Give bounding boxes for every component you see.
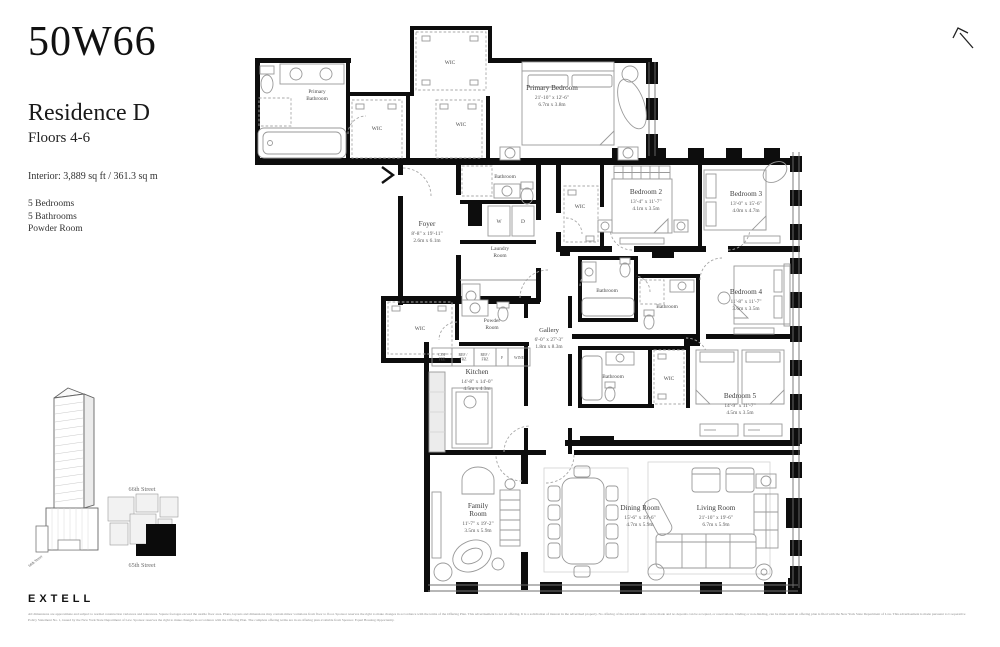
appliance-label-reffrz-2: REF /FRZ [481,353,491,362]
appliance-label-reffrz-1: REF /FRZ [459,353,469,362]
appliance-label-coffee: COFFEE [438,353,446,362]
building-illustration: 66th Street [28,388,98,568]
room-label-primary-bathroom: PrimaryBathroom [306,89,328,102]
appliance-label-wine: WINE [514,356,525,360]
room-label-powder: PowderRoom [484,318,501,331]
extell-logo: EXTELL [28,593,94,605]
room-label-kitchen: Kitchen14'-8" x 14'-0"4.5m x 4.3m [461,368,493,392]
room-label-laundry: LaundryRoom [491,246,510,259]
appliance-label-freezer: F [501,356,503,360]
room-label-wic-mid: WIC [372,126,383,132]
room-label-dining-room: Dining Room15'-6" x 19'-6"4.7m x 5.9m [620,504,660,528]
room-label-bathroom-bedroom5: Bathroom [602,374,624,380]
room-label-gallery: Gallery6'-0" x 27'-3"1.8m x 8.3m [535,327,564,350]
keyplan-street-top: 66th Street [129,486,156,493]
north-arrow-icon [953,28,973,48]
room-label-bedroom5: Bedroom 514'-9" x 11'-7"4.5m x 3.5m [724,392,757,416]
tower-street-label: 66th Street [28,554,44,568]
floor-plan-drawing: PrimaryBathroom WIC WIC WIC Primary Bedr… [0,0,1000,647]
room-label-bathroom-hall: Bathroom [596,288,618,294]
legal-disclaimer: All dimensions are approximate and subje… [28,612,972,624]
key-plan: 66th Street 65th Street [108,486,178,569]
floorplan-sheet: 50W66 Residence D Floors 4-6 Interior: 3… [0,0,1000,647]
room-label-foyer: Foyer8'-8" x 19'-11"2.6m x 6.1m [411,220,442,244]
room-label-wic-bedroom5: WIC [664,376,675,382]
room-label-wic-primary: WIC [456,122,467,128]
room-label-family-room: FamilyRoom11'-7" x 19'-2"3.5m x 5.9m [462,502,493,534]
room-label-bedroom4: Bedroom 411'-8" x 11'-7"3.6m x 3.5m [730,288,763,312]
room-label-bedroom3: Bedroom 313'-0" x 15'-6"4.0m x 4.7m [730,190,763,214]
room-label-bedroom2: Bedroom 213'-4" x 11'-7"4.1m x 3.5m [630,188,663,212]
room-label-wic-top: WIC [445,60,456,66]
entry-arrow-icon [382,167,393,183]
keyplan-street-bottom: 65th Street [129,562,156,569]
room-label-wic-bedroom2: WIC [575,204,586,210]
room-label-bathroom-bedroom4: Bathroom [656,304,678,310]
room-label-bathroom-foyer: Bathroom [494,174,516,180]
room-label-wic-powder: WIC [415,326,426,332]
dryer-label: D [521,219,525,225]
room-label-living-room: Living Room21'-10" x 19'-6"6.7m x 5.9m [697,504,736,528]
